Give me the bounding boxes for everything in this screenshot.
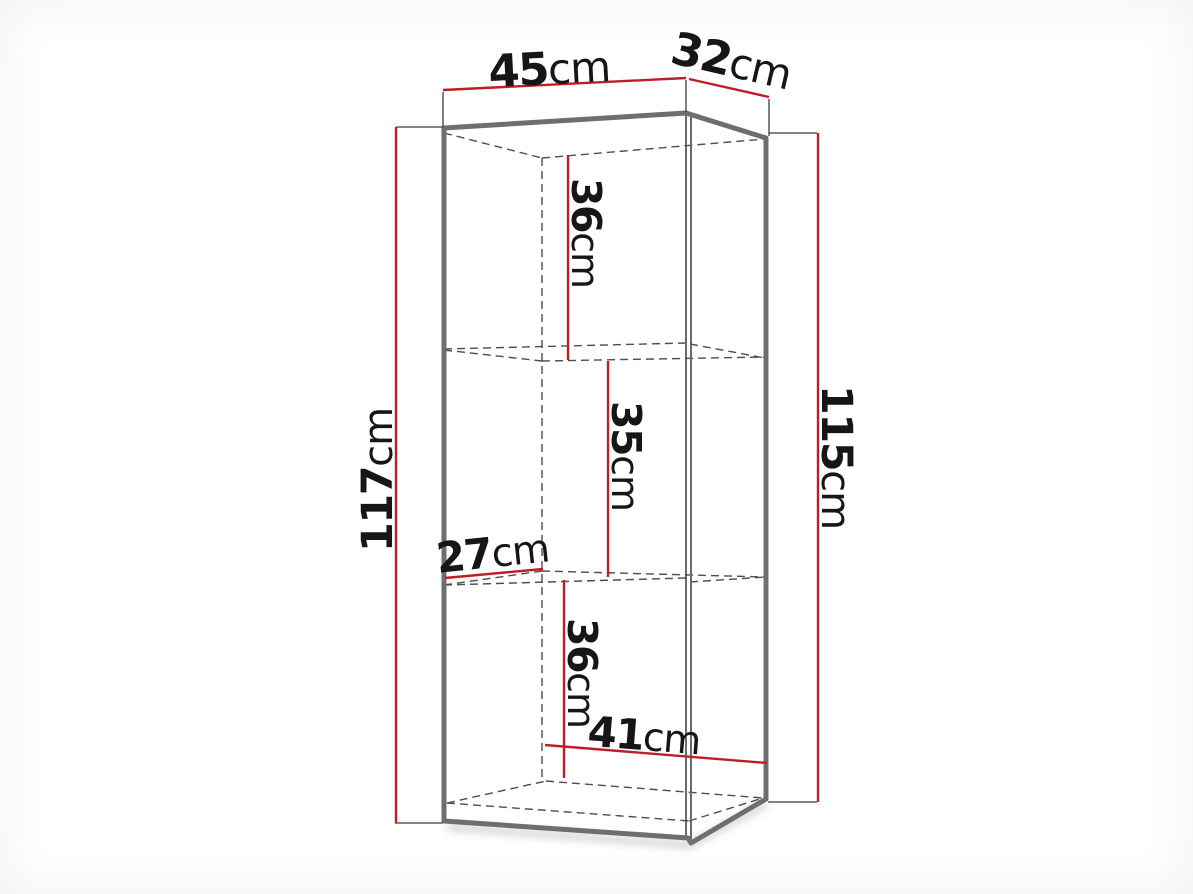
dim-unit: cm [547,42,611,94]
dim-label-front-width: 45cm [487,39,611,98]
dim-label-right-height: 115cm [811,385,861,529]
dim-unit: cm [641,715,702,764]
dim-unit: cm [603,455,647,511]
diagram-canvas: 45cm 32cm 117cm 115cm 36cm 35cm 27cm 36c… [0,0,1193,894]
dim-label-interior-depth: 27cm [434,522,551,583]
dim-value: 36 [558,618,606,672]
dim-value: 41 [586,707,645,760]
top-left-depth-hidden-edge [444,133,542,158]
dim-value: 36 [562,178,610,232]
dim-label-left-height: 117cm [353,408,403,552]
dim-value: 45 [487,42,549,98]
dim-unit: cm [489,526,551,577]
dim-label-interior-width: 41cm [586,707,702,765]
dim-value: 27 [434,528,494,583]
dim-label-upper-compartment: 36cm [562,178,610,288]
dim-value: 35 [602,401,650,455]
bottom-hidden-edges [447,781,763,821]
upper-shelf-hidden-edges [444,343,765,361]
top-back-hidden-edge [542,139,765,158]
dim-value: 117 [353,467,403,552]
dim-value: 115 [811,385,861,470]
dim-unit: cm [563,232,607,288]
dim-unit: cm [812,470,858,529]
cabinet-dimension-diagram: 45cm 32cm 117cm 115cm 36cm 35cm 27cm 36c… [0,0,1193,894]
dim-unit: cm [356,408,402,467]
dim-label-middle-compartment: 35cm [602,401,650,511]
